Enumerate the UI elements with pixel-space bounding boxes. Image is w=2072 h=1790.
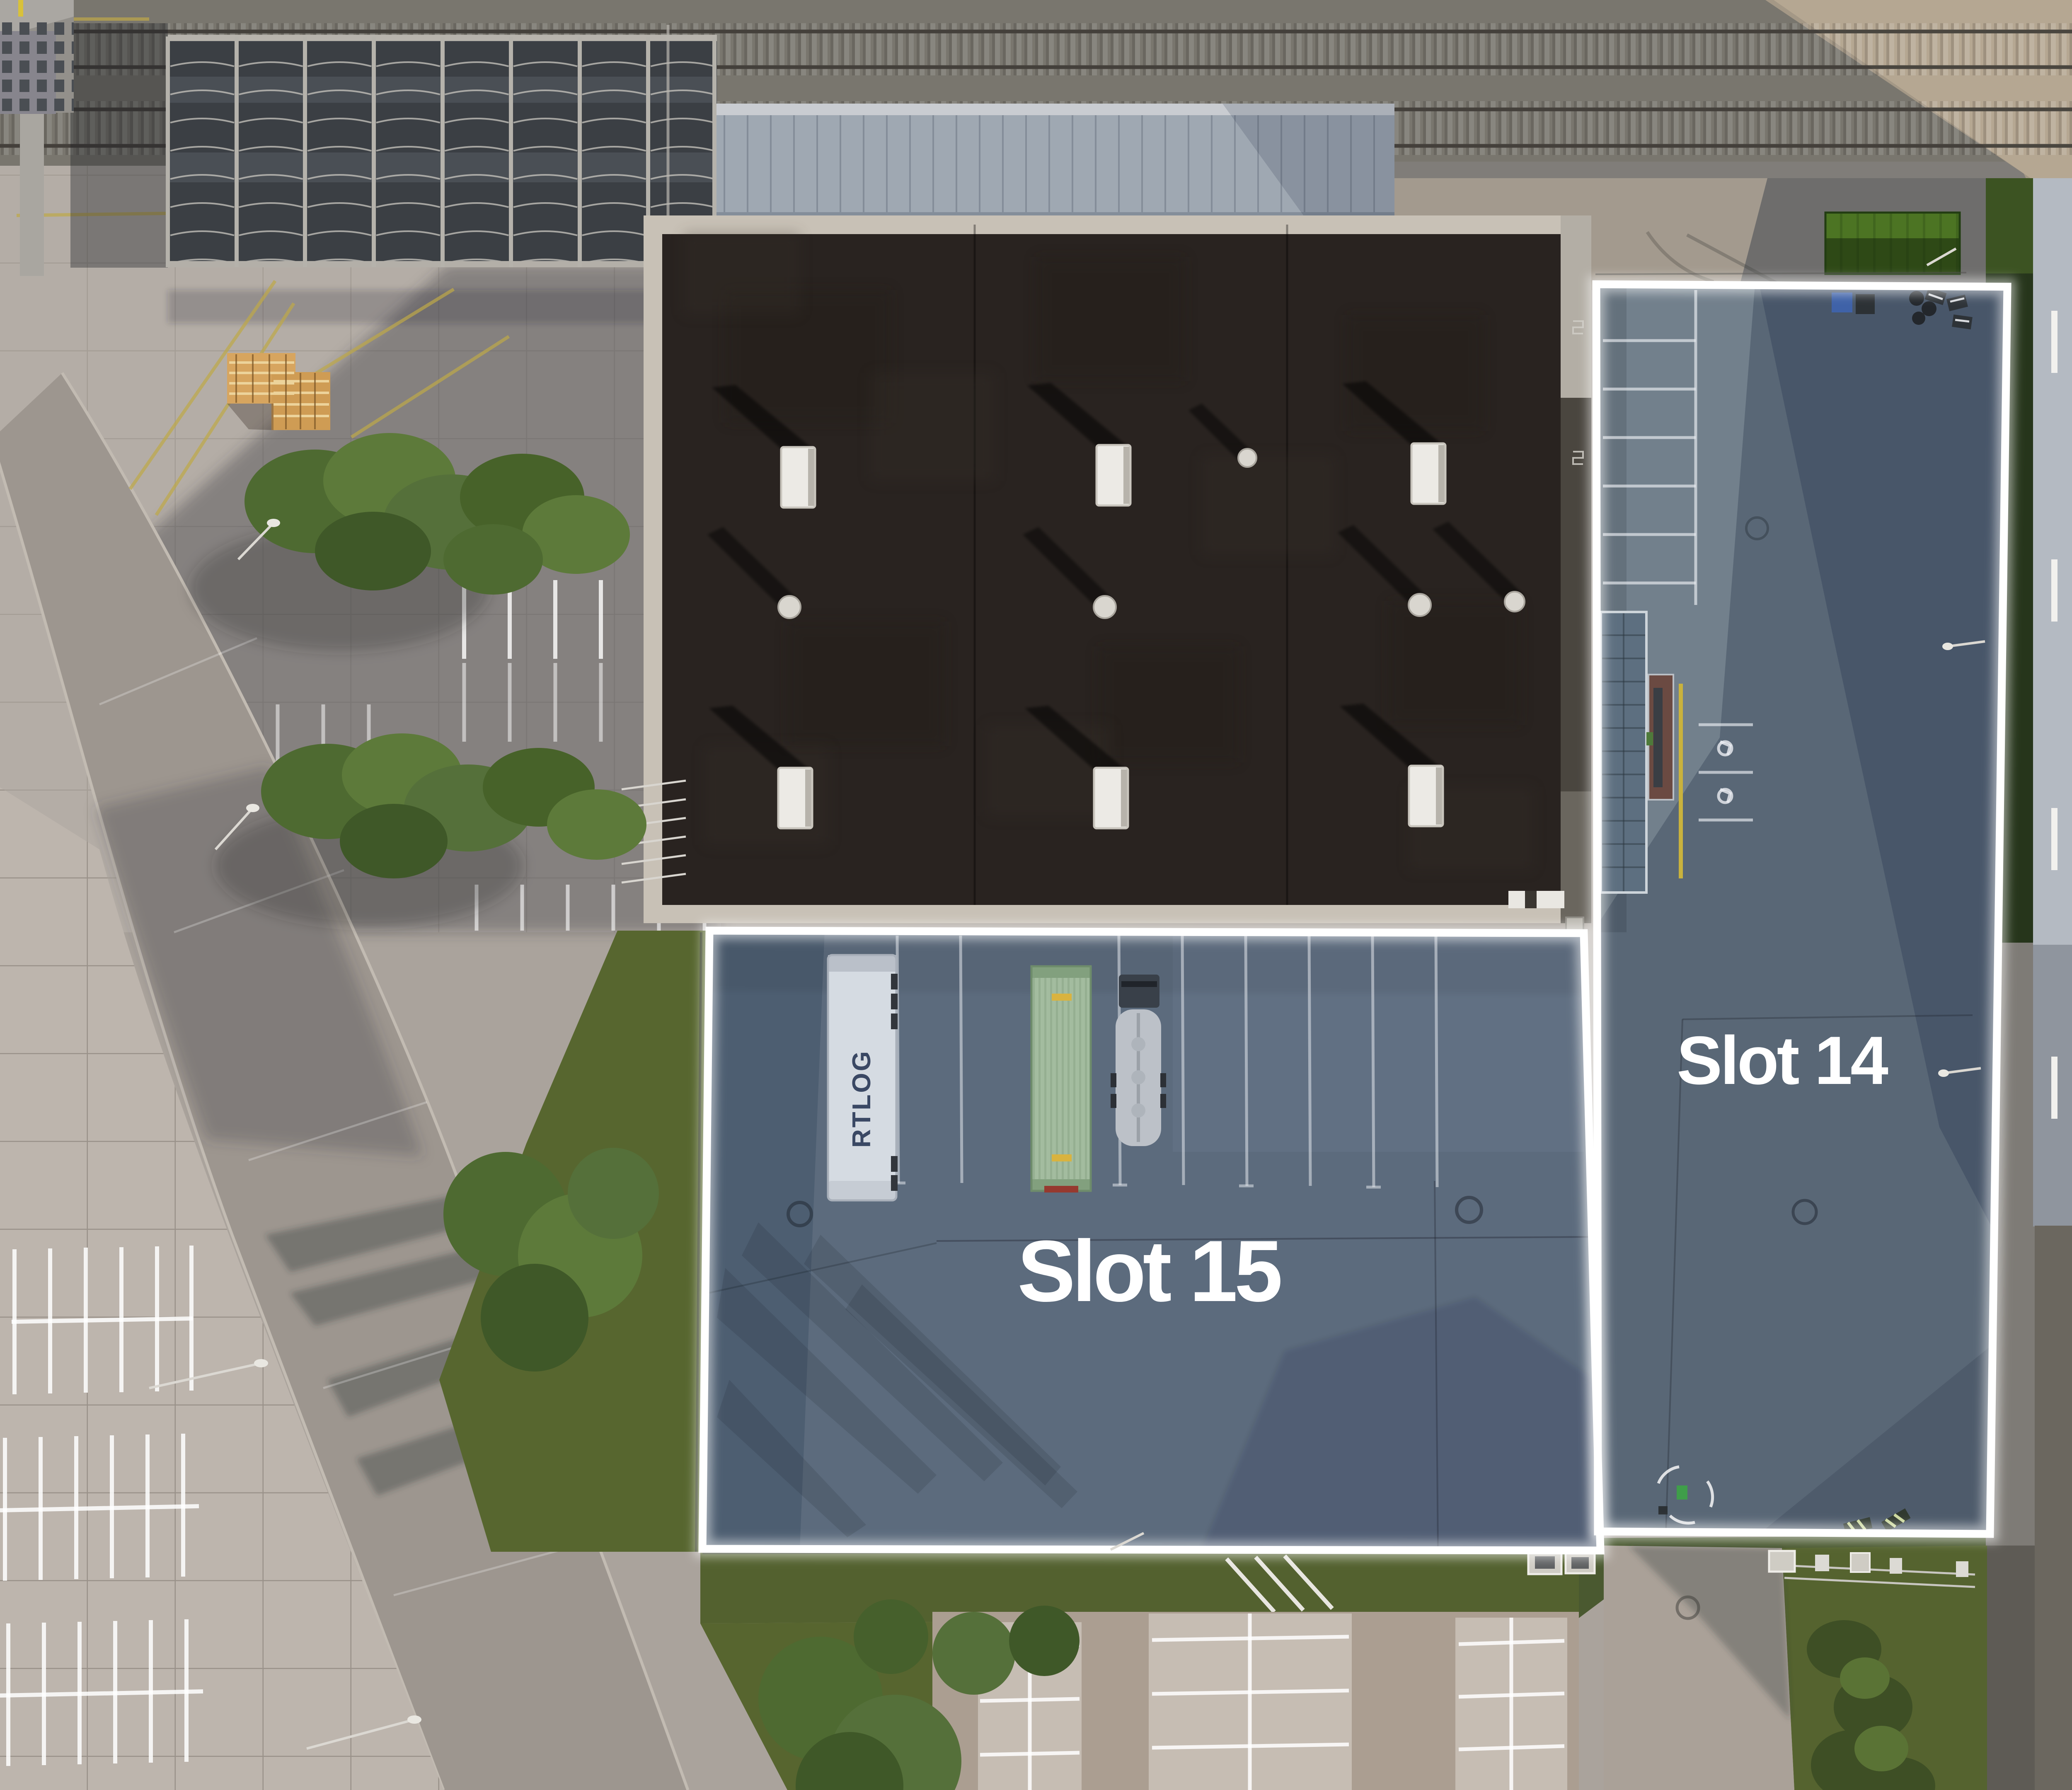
svg-text:Slot 15: Slot 15 [1017,1222,1280,1320]
svg-text:RTLOG: RTLOG [847,1050,876,1148]
svg-text:Slot 14: Slot 14 [1677,1022,1888,1098]
